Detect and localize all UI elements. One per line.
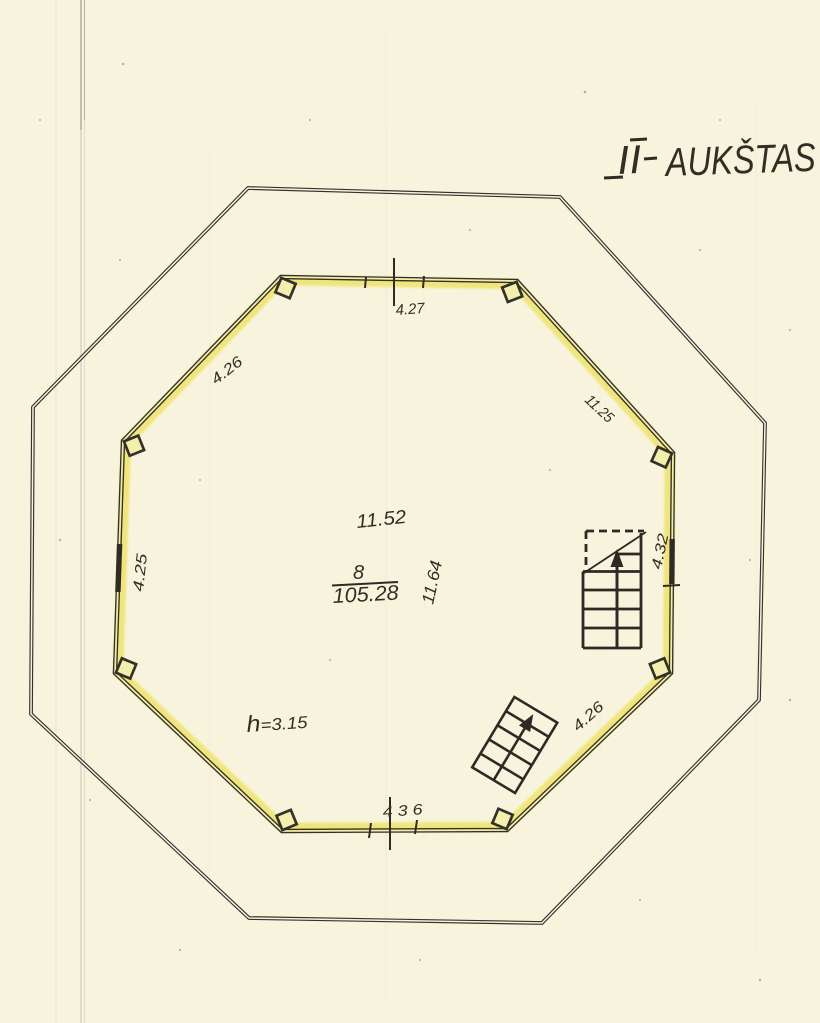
svg-text:4.27: 4.27 [395, 300, 426, 319]
svg-text:4 3 6: 4 3 6 [382, 801, 424, 821]
svg-text:8: 8 [353, 562, 364, 584]
svg-text:105.28: 105.28 [332, 582, 399, 608]
svg-text:AUKŠTAS: AUKŠTAS [663, 135, 816, 185]
